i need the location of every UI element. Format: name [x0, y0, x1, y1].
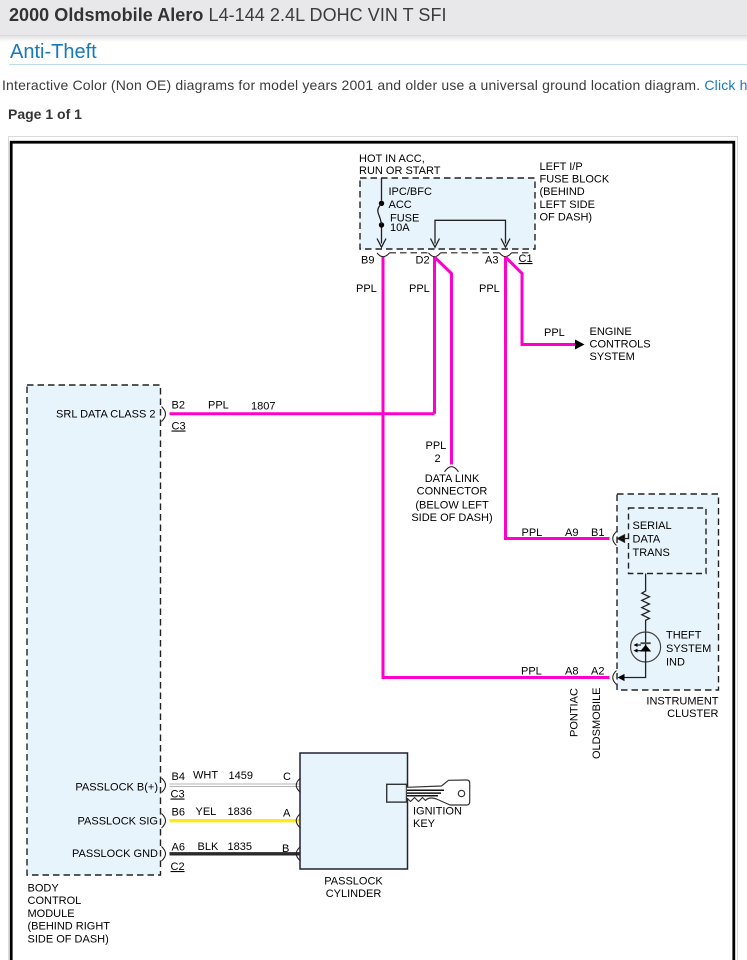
svg-text:B6: B6	[172, 807, 185, 819]
svg-text:RUN OR START: RUN OR START	[359, 165, 441, 177]
svg-text:SIDE OF DASH): SIDE OF DASH)	[411, 512, 492, 524]
svg-text:A9: A9	[565, 527, 578, 539]
svg-text:ACC: ACC	[389, 199, 412, 211]
svg-text:INSTRUMENT: INSTRUMENT	[646, 696, 718, 708]
svg-text:A2: A2	[591, 666, 604, 678]
svg-text:MODULE: MODULE	[28, 908, 75, 920]
svg-text:B9: B9	[361, 255, 374, 267]
svg-text:PASSLOCK SIG: PASSLOCK SIG	[78, 816, 159, 828]
svg-text:PASSLOCK GND: PASSLOCK GND	[72, 848, 158, 860]
svg-text:A8: A8	[565, 666, 578, 678]
svg-text:PPL: PPL	[522, 527, 543, 539]
svg-text:ENGINE: ENGINE	[590, 326, 632, 338]
svg-text:SERIAL: SERIAL	[633, 520, 672, 532]
svg-text:D2: D2	[416, 255, 430, 267]
svg-text:10A: 10A	[390, 222, 410, 234]
svg-text:HOT IN ACC,: HOT IN ACC,	[359, 153, 425, 165]
svg-text:1836: 1836	[228, 806, 252, 818]
svg-text:PASSLOCK: PASSLOCK	[324, 876, 383, 888]
svg-text:LEFT I/P: LEFT I/P	[540, 161, 583, 173]
svg-text:DATA LINK: DATA LINK	[425, 473, 480, 485]
svg-text:2: 2	[435, 453, 441, 465]
svg-text:YEL: YEL	[196, 806, 217, 818]
svg-text:1459: 1459	[229, 770, 253, 782]
svg-text:SYSTEM: SYSTEM	[666, 643, 711, 655]
svg-text:PPL: PPL	[544, 327, 565, 339]
svg-text:1807: 1807	[251, 401, 275, 413]
svg-text:C3: C3	[172, 421, 186, 433]
svg-text:CLUSTER: CLUSTER	[667, 708, 718, 720]
svg-text:CONTROL: CONTROL	[28, 895, 82, 907]
svg-text:KEY: KEY	[413, 818, 436, 830]
svg-text:PASSLOCK B(+): PASSLOCK B(+)	[75, 782, 158, 794]
svg-text:B1: B1	[591, 527, 604, 539]
svg-text:THEFT: THEFT	[666, 630, 702, 642]
svg-text:CYLINDER: CYLINDER	[326, 888, 382, 900]
svg-text:PPL: PPL	[521, 666, 542, 678]
svg-text:C3: C3	[171, 789, 185, 801]
svg-text:(BEHIND: (BEHIND	[540, 186, 585, 198]
svg-text:PPL: PPL	[356, 283, 377, 295]
svg-text:FUSE BLOCK: FUSE BLOCK	[540, 174, 610, 186]
svg-text:C1: C1	[519, 253, 533, 265]
svg-text:PPL: PPL	[479, 283, 500, 295]
svg-text:B4: B4	[172, 771, 185, 783]
svg-text:WHT: WHT	[193, 770, 218, 782]
svg-text:OLDSMOBILE: OLDSMOBILE	[591, 687, 603, 759]
svg-text:CONTROLS: CONTROLS	[590, 339, 651, 351]
svg-text:PPL: PPL	[208, 400, 229, 412]
svg-text:(BELOW LEFT: (BELOW LEFT	[415, 500, 489, 512]
svg-text:BLK: BLK	[198, 841, 219, 853]
svg-text:TRANS: TRANS	[633, 547, 670, 559]
svg-text:C2: C2	[171, 861, 185, 873]
svg-text:A: A	[283, 808, 291, 820]
svg-text:A6: A6	[172, 842, 185, 854]
svg-text:PPL: PPL	[409, 283, 430, 295]
svg-text:IGNITION: IGNITION	[413, 806, 462, 818]
svg-text:PPL: PPL	[426, 440, 447, 452]
svg-text:B2: B2	[172, 400, 185, 412]
svg-text:OF DASH): OF DASH)	[540, 211, 593, 223]
svg-text:CONNECTOR: CONNECTOR	[417, 486, 488, 498]
svg-text:SRL DATA CLASS 2: SRL DATA CLASS 2	[56, 409, 155, 421]
svg-text:DATA: DATA	[633, 533, 661, 545]
svg-text:SIDE OF DASH): SIDE OF DASH)	[28, 933, 109, 945]
svg-text:A3: A3	[485, 255, 498, 267]
svg-text:BODY: BODY	[28, 883, 60, 895]
svg-text:1835: 1835	[228, 841, 252, 853]
svg-text:PONTIAC: PONTIAC	[569, 688, 581, 737]
svg-text:IPC/BFC: IPC/BFC	[389, 186, 432, 198]
svg-text:(BEHIND RIGHT: (BEHIND RIGHT	[28, 921, 111, 933]
svg-text:IND: IND	[666, 656, 685, 668]
svg-text:C: C	[283, 771, 291, 783]
svg-text:LEFT SIDE: LEFT SIDE	[540, 199, 595, 211]
svg-text:SYSTEM: SYSTEM	[590, 351, 635, 363]
